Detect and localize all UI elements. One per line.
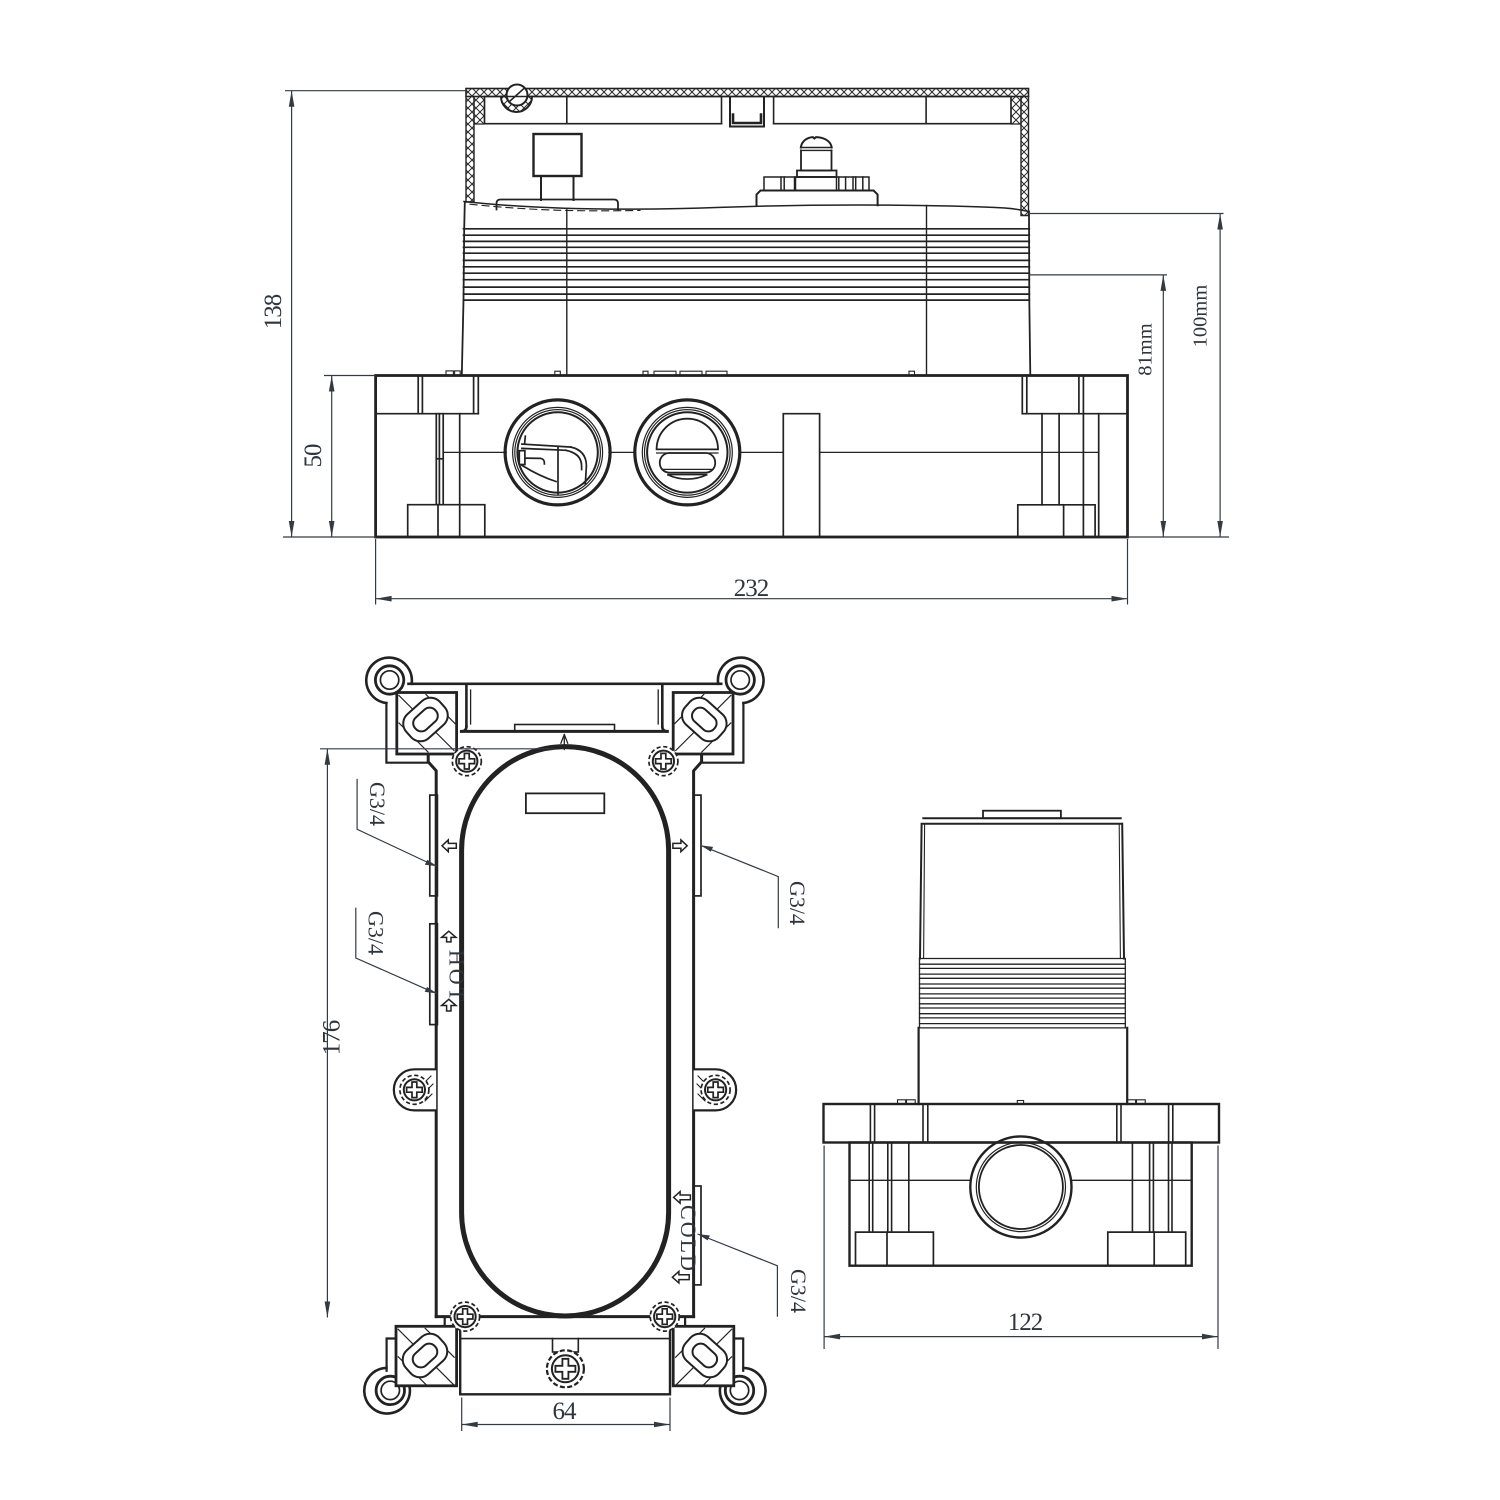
svg-text:G3/4: G3/4 — [364, 911, 389, 955]
svg-text:G3/4: G3/4 — [786, 1269, 811, 1313]
svg-text:176: 176 — [319, 1020, 346, 1055]
svg-text:50: 50 — [300, 444, 327, 468]
svg-text:122: 122 — [1008, 1309, 1043, 1336]
svg-text:100mm: 100mm — [1190, 285, 1212, 348]
svg-text:G3/4: G3/4 — [785, 881, 810, 925]
svg-text:COLD: COLD — [676, 1205, 701, 1273]
svg-text:138: 138 — [260, 294, 287, 329]
svg-text:HOT: HOT — [445, 950, 470, 1004]
svg-text:G3/4: G3/4 — [365, 782, 390, 826]
svg-text:64: 64 — [553, 1398, 578, 1425]
svg-text:232: 232 — [734, 575, 769, 602]
svg-text:81mm: 81mm — [1135, 323, 1157, 375]
